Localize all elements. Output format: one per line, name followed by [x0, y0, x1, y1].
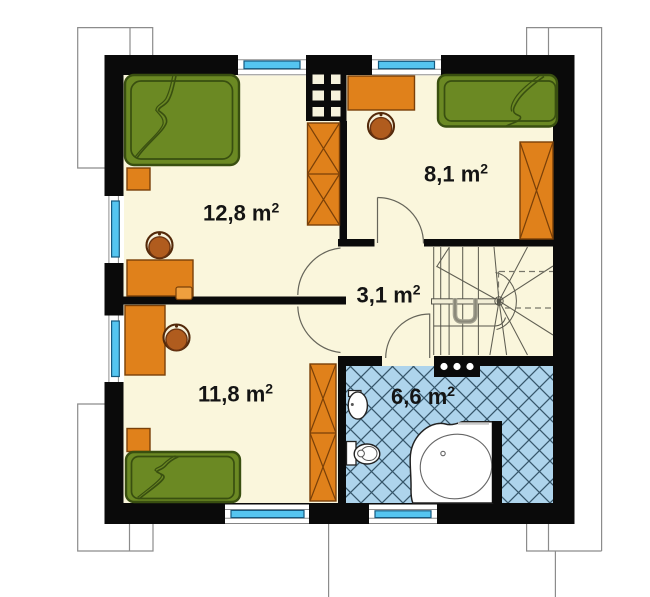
svg-text:3,1 m2: 3,1 m2	[357, 282, 421, 308]
svg-text:8,1 m2: 8,1 m2	[424, 161, 488, 187]
svg-text:12,8 m2: 12,8 m2	[203, 200, 280, 226]
svg-text:6,6 m2: 6,6 m2	[391, 383, 455, 409]
svg-text:11,8 m2: 11,8 m2	[198, 381, 273, 407]
